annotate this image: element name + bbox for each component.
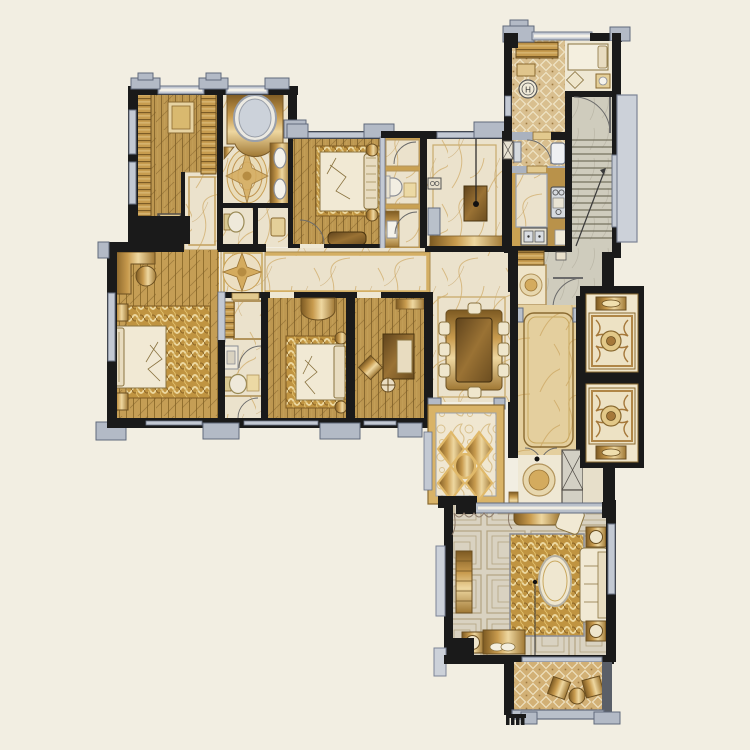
svg-text:H: H bbox=[525, 86, 531, 95]
